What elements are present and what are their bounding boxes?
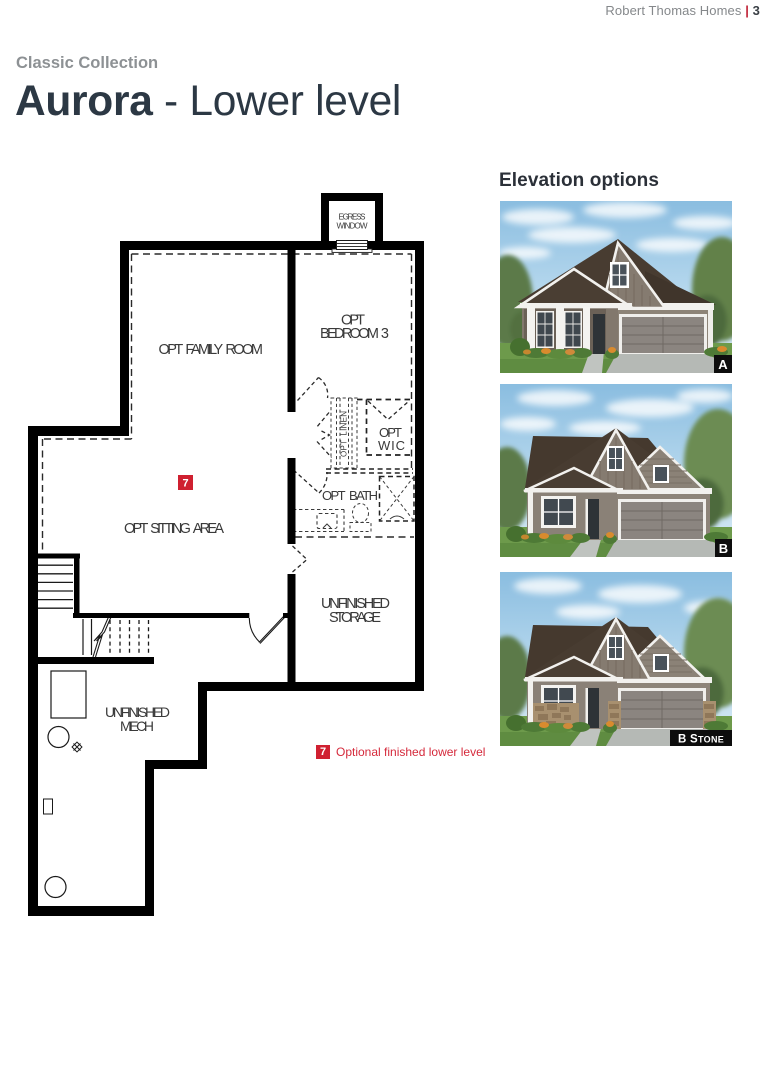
svg-text:7: 7 xyxy=(182,478,188,490)
svg-text:OPT BATH: OPT BATH xyxy=(322,488,378,503)
svg-text:EGRESS: EGRESS xyxy=(339,213,366,222)
svg-text:B: B xyxy=(719,541,728,556)
svg-text:OPT LINEN: OPT LINEN xyxy=(340,411,349,457)
svg-text:BEDROOM 3: BEDROOM 3 xyxy=(320,326,389,342)
svg-text:A: A xyxy=(718,357,728,372)
svg-text:OPT FAMILY ROOM: OPT FAMILY ROOM xyxy=(158,342,263,358)
svg-text:WINDOW: WINDOW xyxy=(337,222,368,231)
svg-text:WIC: WIC xyxy=(378,438,405,453)
svg-text:MECH: MECH xyxy=(120,718,154,734)
svg-text:B STONE: B STONE xyxy=(678,734,724,746)
svg-text:OPT SITTING AREA: OPT SITTING AREA xyxy=(124,521,224,537)
svg-text:STORAGE: STORAGE xyxy=(329,610,381,626)
